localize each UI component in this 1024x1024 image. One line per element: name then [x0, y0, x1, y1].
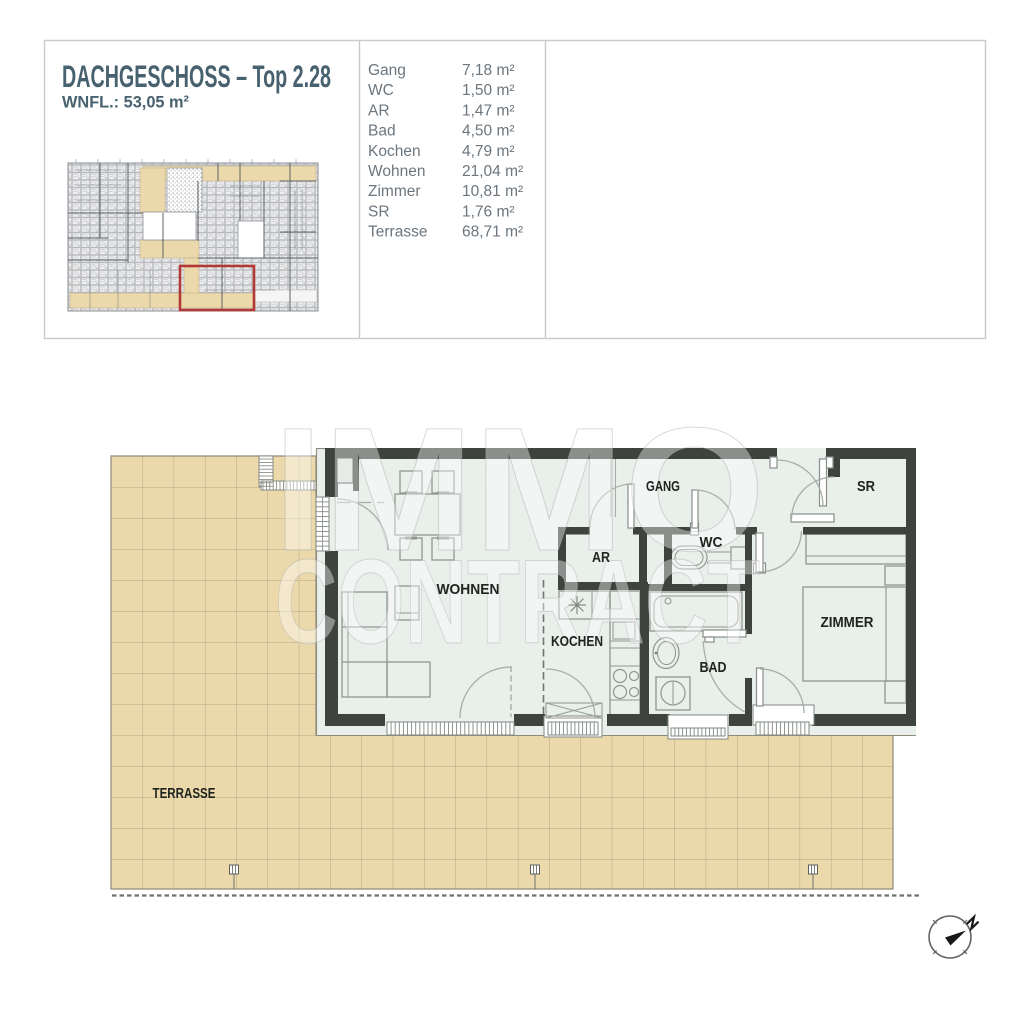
svg-text:AR: AR — [592, 549, 610, 566]
svg-text:SR: SR — [368, 203, 390, 220]
svg-text:WNFL.: 53,05 m²: WNFL.: 53,05 m² — [62, 93, 189, 112]
svg-text:AR: AR — [368, 102, 390, 119]
svg-text:1,47 m²: 1,47 m² — [462, 102, 515, 119]
svg-text:Wohnen: Wohnen — [368, 163, 425, 180]
svg-text:SR: SR — [857, 478, 875, 495]
svg-text:DACHGESCHOSS – Top 2.28: DACHGESCHOSS – Top 2.28 — [62, 58, 331, 94]
svg-text:ZIMMER: ZIMMER — [821, 614, 874, 631]
svg-text:Terrasse: Terrasse — [368, 224, 427, 241]
svg-text:4,79 m²: 4,79 m² — [462, 143, 515, 160]
svg-text:68,71 m²: 68,71 m² — [462, 224, 523, 241]
svg-text:TERRASSE: TERRASSE — [153, 785, 216, 802]
svg-text:1,50 m²: 1,50 m² — [462, 82, 515, 99]
svg-text:Gang: Gang — [368, 62, 406, 79]
svg-text:Bad: Bad — [368, 123, 396, 140]
svg-text:1,76 m²: 1,76 m² — [462, 203, 515, 220]
svg-text:Zimmer: Zimmer — [368, 183, 421, 200]
svg-text:KOCHEN: KOCHEN — [551, 633, 603, 650]
svg-text:CONTRACT: CONTRACT — [275, 535, 760, 669]
svg-text:WOHNEN: WOHNEN — [437, 581, 500, 598]
svg-text:10,81 m²: 10,81 m² — [462, 183, 523, 200]
svg-text:Kochen: Kochen — [368, 143, 421, 160]
svg-text:GANG: GANG — [646, 478, 680, 495]
svg-text:BAD: BAD — [700, 659, 727, 676]
svg-text:7,18 m²: 7,18 m² — [462, 62, 515, 79]
svg-text:4,50 m²: 4,50 m² — [462, 123, 515, 140]
svg-text:WC: WC — [700, 534, 723, 551]
svg-text:WC: WC — [368, 82, 394, 99]
svg-text:21,04 m²: 21,04 m² — [462, 163, 523, 180]
